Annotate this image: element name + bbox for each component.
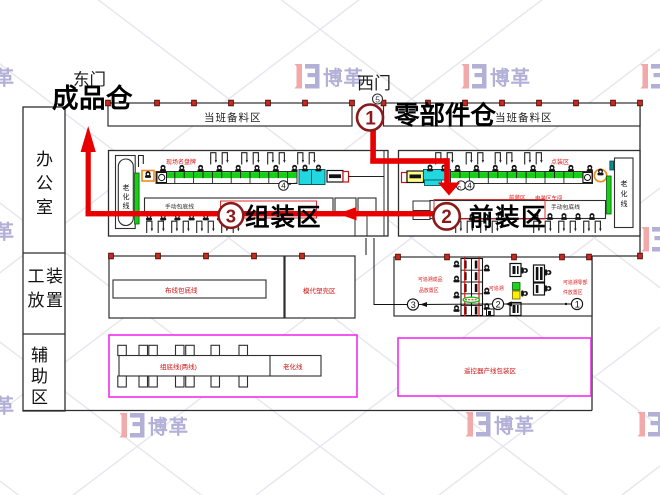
svg-text:当班备料区: 当班备料区 xyxy=(204,111,262,124)
svg-text:前装区: 前装区 xyxy=(509,194,526,202)
svg-text:1: 1 xyxy=(365,109,376,130)
svg-text:3: 3 xyxy=(411,300,416,310)
svg-text:西门: 西门 xyxy=(357,74,391,93)
svg-text:办: 办 xyxy=(36,150,53,169)
svg-text:遥控器产线包装区: 遥控器产线包装区 xyxy=(464,366,517,375)
svg-text:2: 2 xyxy=(441,207,452,228)
svg-text:工装: 工装 xyxy=(28,267,65,286)
svg-text:点装区: 点装区 xyxy=(551,158,569,166)
svg-text:老化线: 老化线 xyxy=(283,362,303,371)
svg-text:可追溯成品: 可追溯成品 xyxy=(418,276,443,283)
svg-text:可追溯零部: 可追溯零部 xyxy=(563,279,588,286)
svg-text:手动包底线: 手动包底线 xyxy=(551,203,580,211)
svg-text:3: 3 xyxy=(226,206,236,227)
svg-text:老: 老 xyxy=(621,179,628,188)
svg-text:线: 线 xyxy=(123,201,130,210)
svg-text:化: 化 xyxy=(621,189,628,198)
svg-text:4: 4 xyxy=(281,182,286,191)
svg-text:成品仓: 成品仓 xyxy=(52,84,133,114)
svg-text:线: 线 xyxy=(621,199,628,208)
svg-text:当班备料区: 当班备料区 xyxy=(495,111,553,124)
svg-text:公: 公 xyxy=(36,174,53,193)
svg-text:现场名盘牌: 现场名盘牌 xyxy=(166,158,196,166)
svg-text:品放置区: 品放置区 xyxy=(419,287,439,294)
svg-text:组底线(两线): 组底线(两线) xyxy=(160,362,197,371)
svg-text:手动包底线: 手动包底线 xyxy=(165,203,194,211)
svg-text:化: 化 xyxy=(123,192,130,201)
svg-text:模代塑壳区: 模代塑壳区 xyxy=(303,286,336,295)
svg-text:可追溯: 可追溯 xyxy=(489,285,504,292)
svg-text:区: 区 xyxy=(31,388,48,407)
svg-text:电装区车间: 电装区车间 xyxy=(535,194,563,202)
svg-text:4: 4 xyxy=(467,182,472,191)
svg-text:布线包底线: 布线包底线 xyxy=(165,286,198,295)
svg-text:1: 1 xyxy=(575,299,580,309)
svg-text:5: 5 xyxy=(375,94,380,104)
svg-text:室: 室 xyxy=(36,198,53,217)
svg-text:放置: 放置 xyxy=(28,291,65,310)
svg-text:件放置区: 件放置区 xyxy=(563,289,583,296)
svg-text:2: 2 xyxy=(496,299,501,309)
svg-text:组装区: 组装区 xyxy=(245,204,322,232)
svg-text:前装区: 前装区 xyxy=(469,203,547,232)
svg-text:零部件仓: 零部件仓 xyxy=(394,101,497,130)
svg-text:辅: 辅 xyxy=(31,346,48,365)
svg-text:老: 老 xyxy=(123,183,130,192)
svg-text:助: 助 xyxy=(31,367,48,386)
